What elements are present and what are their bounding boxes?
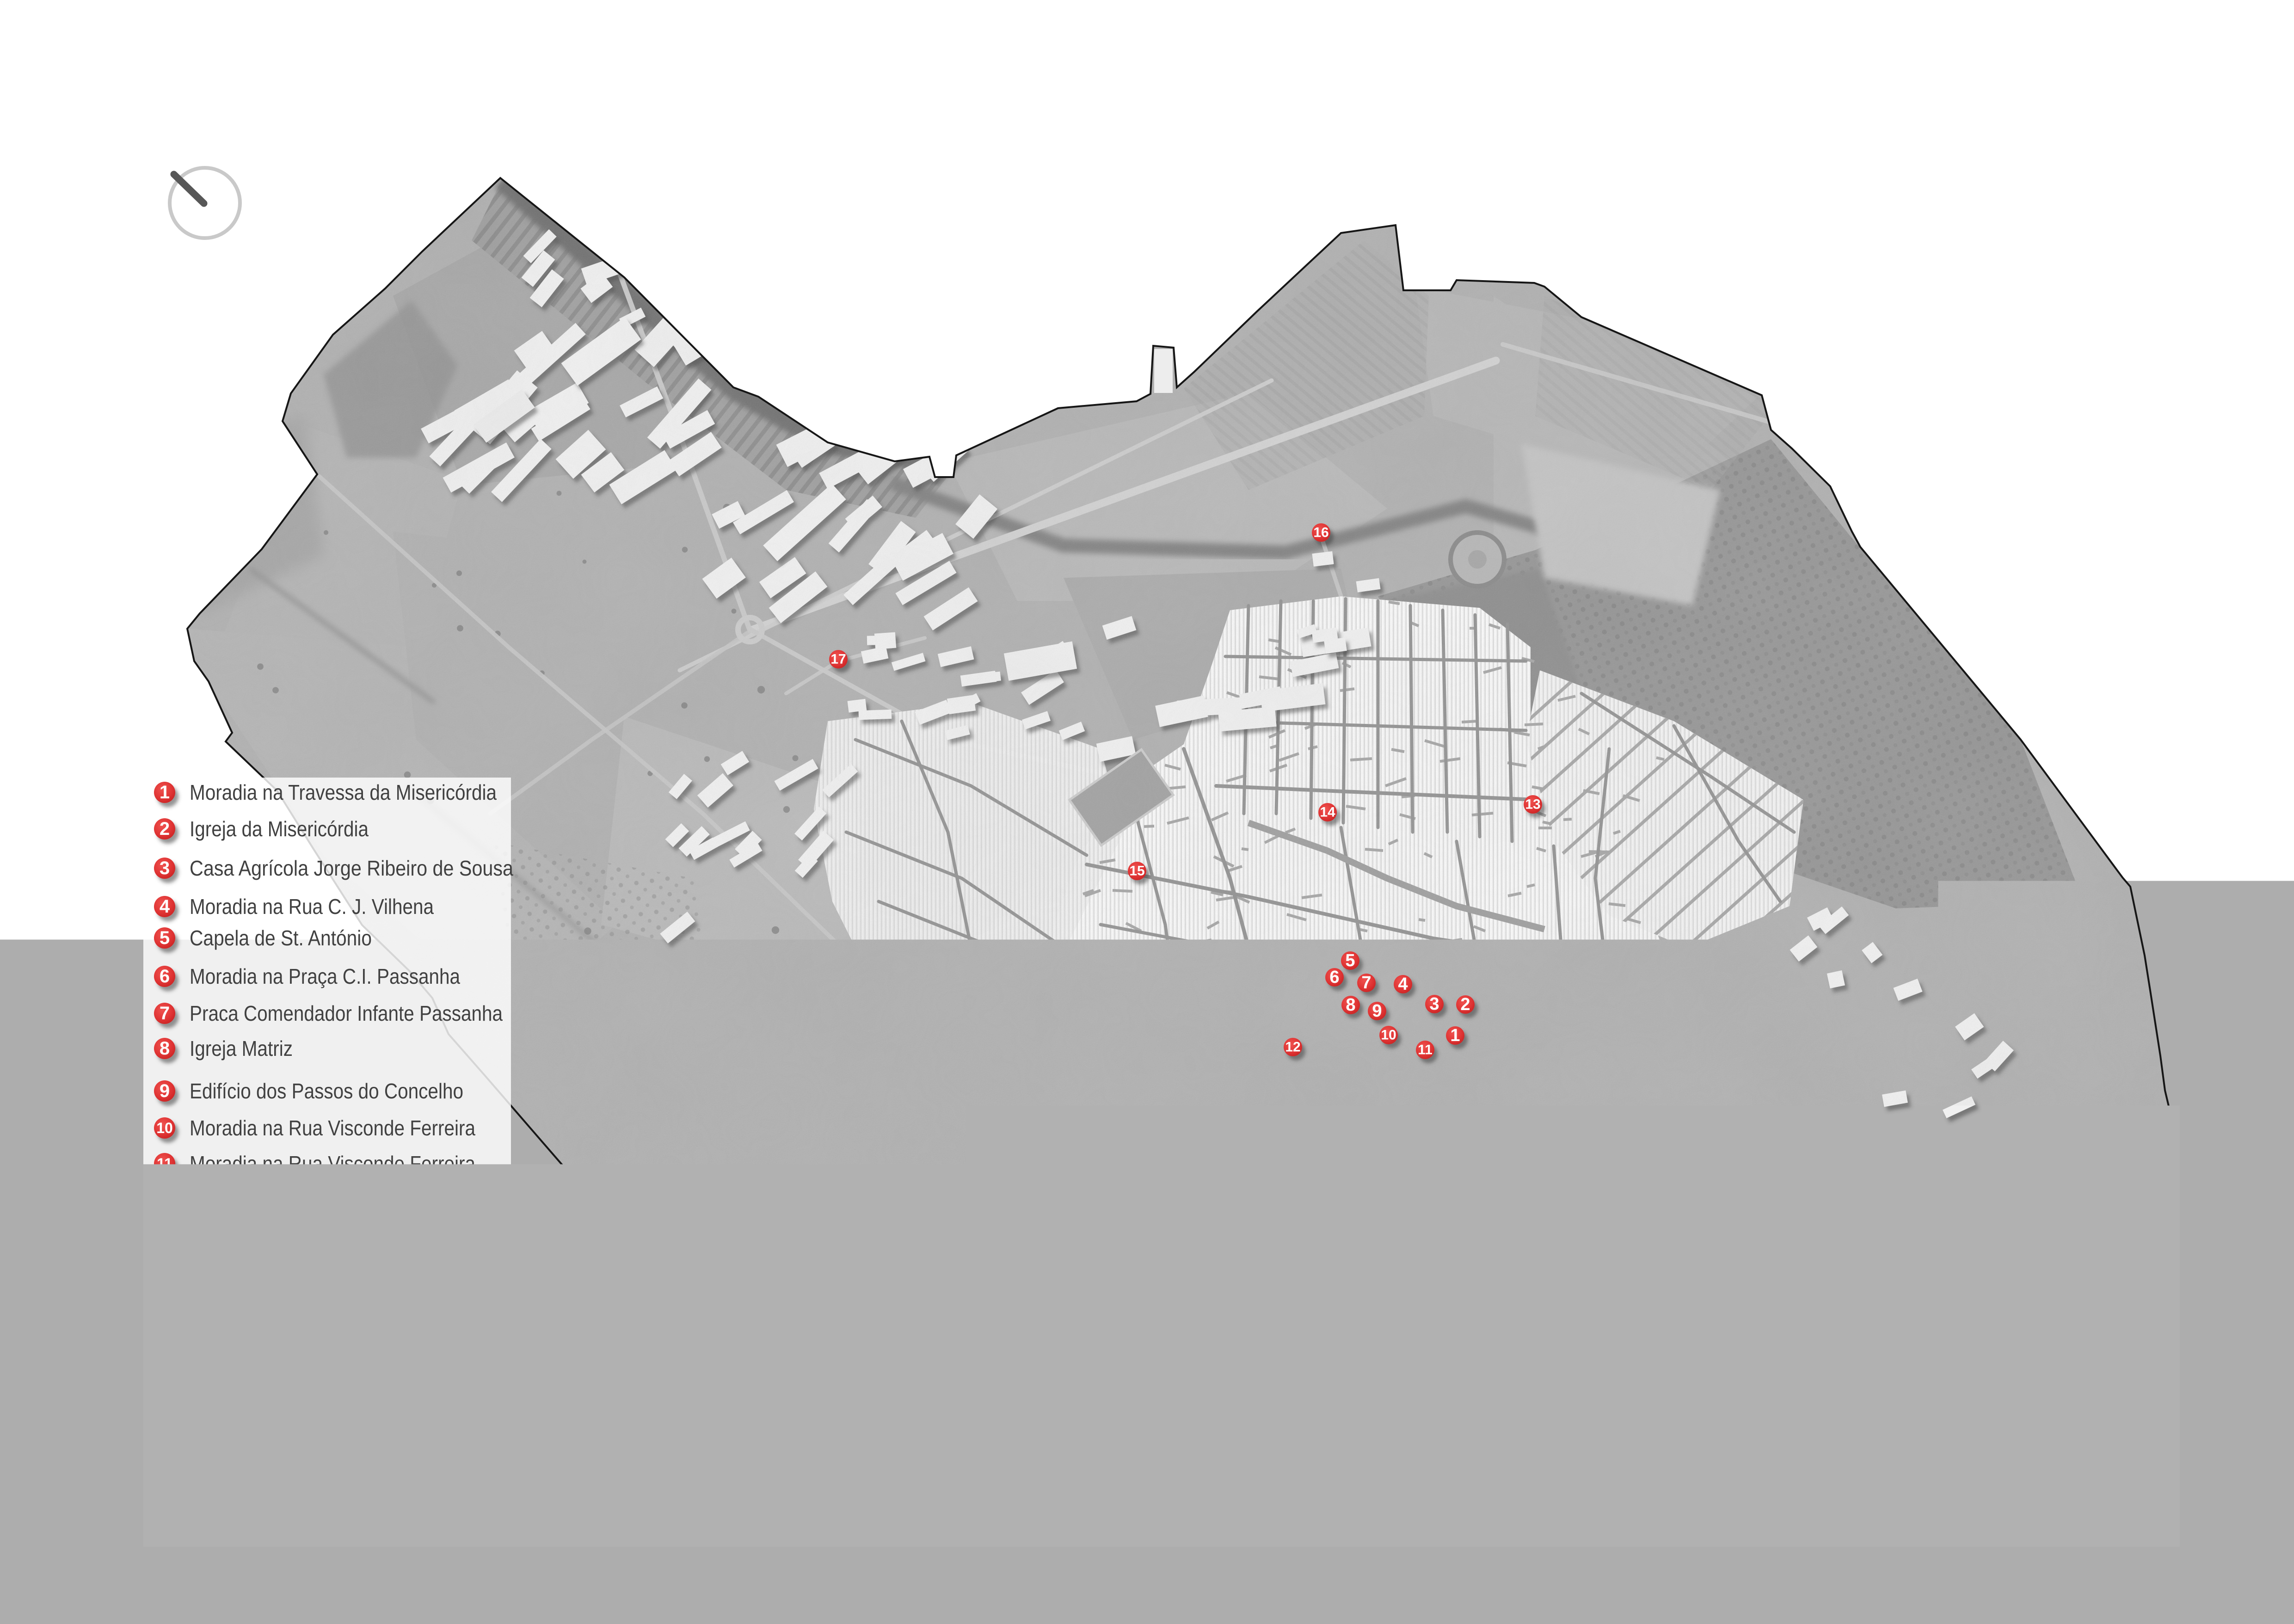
svg-text:16: 16	[156, 1337, 173, 1354]
svg-text:Igreja Matriz: Igreja Matriz	[190, 1036, 293, 1060]
svg-text:17: 17	[156, 1371, 173, 1387]
svg-text:11: 11	[1418, 1042, 1433, 1058]
svg-text:3: 3	[160, 858, 170, 878]
svg-text:13: 13	[156, 1232, 173, 1249]
svg-text:Moradia na Rua Miguel Bombarda: Moradia na Rua Miguel Bombarda	[190, 1190, 475, 1214]
svg-text:9: 9	[1372, 1001, 1382, 1021]
svg-text:14: 14	[1320, 805, 1335, 820]
svg-text:4: 4	[1398, 974, 1408, 994]
svg-text:7: 7	[160, 1003, 170, 1023]
svg-text:Igreja Nossa Sr. da Conceição: Igreja Nossa Sr. da Conceição	[190, 1367, 443, 1391]
svg-text:17: 17	[830, 652, 846, 667]
svg-text:5: 5	[160, 928, 170, 948]
svg-text:Edifício dos Passos do Concelh: Edifício dos Passos do Concelho	[190, 1079, 463, 1103]
svg-text:1: 1	[1450, 1026, 1460, 1045]
svg-text:15: 15	[156, 1299, 173, 1316]
svg-text:6: 6	[1329, 968, 1339, 987]
svg-text:Ermida de São Sebastião: Ermida de São Sebastião	[190, 1333, 402, 1357]
svg-text:0: 0	[159, 1518, 170, 1540]
svg-text:12: 12	[1285, 1040, 1300, 1055]
svg-text:13: 13	[1525, 797, 1540, 812]
svg-text:10: 10	[156, 1120, 173, 1136]
svg-text:16: 16	[1313, 525, 1328, 540]
svg-text:7: 7	[1361, 973, 1371, 993]
svg-text:12: 12	[156, 1194, 173, 1211]
svg-text:9: 9	[160, 1081, 170, 1101]
svg-text:2: 2	[1460, 995, 1470, 1014]
svg-text:14: 14	[156, 1267, 173, 1283]
svg-text:Igreja da Misericórdia: Igreja da Misericórdia	[190, 817, 369, 841]
svg-text:Moradia na Praça C.I. Passanha: Moradia na Praça C.I. Passanha	[190, 964, 460, 988]
svg-text:Capela do Calvário: Capela do Calvário	[190, 1296, 349, 1320]
svg-text:Morada sita na R. Movimento da: Morada sita na R. Movimento das Forças A…	[190, 1263, 612, 1287]
svg-text:6: 6	[160, 966, 170, 987]
svg-text:10: 10	[1381, 1028, 1396, 1043]
svg-text:Moradia na Travessa da Miseric: Moradia na Travessa da Misericórdia	[190, 780, 497, 804]
svg-text:Moradia na Rua Visconde Ferrei: Moradia na Rua Visconde Ferreira	[190, 1116, 475, 1140]
svg-text:8: 8	[1346, 995, 1355, 1015]
svg-text:15: 15	[1129, 864, 1144, 879]
svg-text:Capela de St. António: Capela de St. António	[190, 926, 372, 950]
svg-text:11: 11	[157, 1155, 172, 1172]
svg-text:Moradia na Rua Visconde Ferrei: Moradia na Rua Visconde Ferreira	[190, 1152, 475, 1176]
svg-text:Moradia na Rua C. J. Vilhena: Moradia na Rua C. J. Vilhena	[190, 895, 434, 919]
svg-text:Praca Comendador Infante Passa: Praca Comendador Infante Passanha	[190, 1001, 503, 1025]
svg-text:1: 1	[160, 782, 170, 803]
svg-text:Edificado: Edificado	[289, 1435, 365, 1459]
svg-text:8: 8	[160, 1038, 170, 1059]
svg-text:5: 5	[1345, 951, 1355, 970]
svg-text:4: 4	[160, 896, 170, 917]
svg-text:Casa Nobre do Largo D. Luís Ma: Casa Nobre do Largo D. Luís Maldonado Pa…	[190, 1229, 619, 1253]
svg-text:70: 70	[207, 1518, 230, 1540]
svg-text:3: 3	[1429, 994, 1439, 1014]
svg-text:140m: 140m	[252, 1518, 303, 1540]
svg-text:2: 2	[160, 819, 170, 839]
svg-text:Casa Agrícola Jorge Ribeiro d: Casa Agrícola Jorge Ribeiro de Sousa	[190, 856, 513, 880]
